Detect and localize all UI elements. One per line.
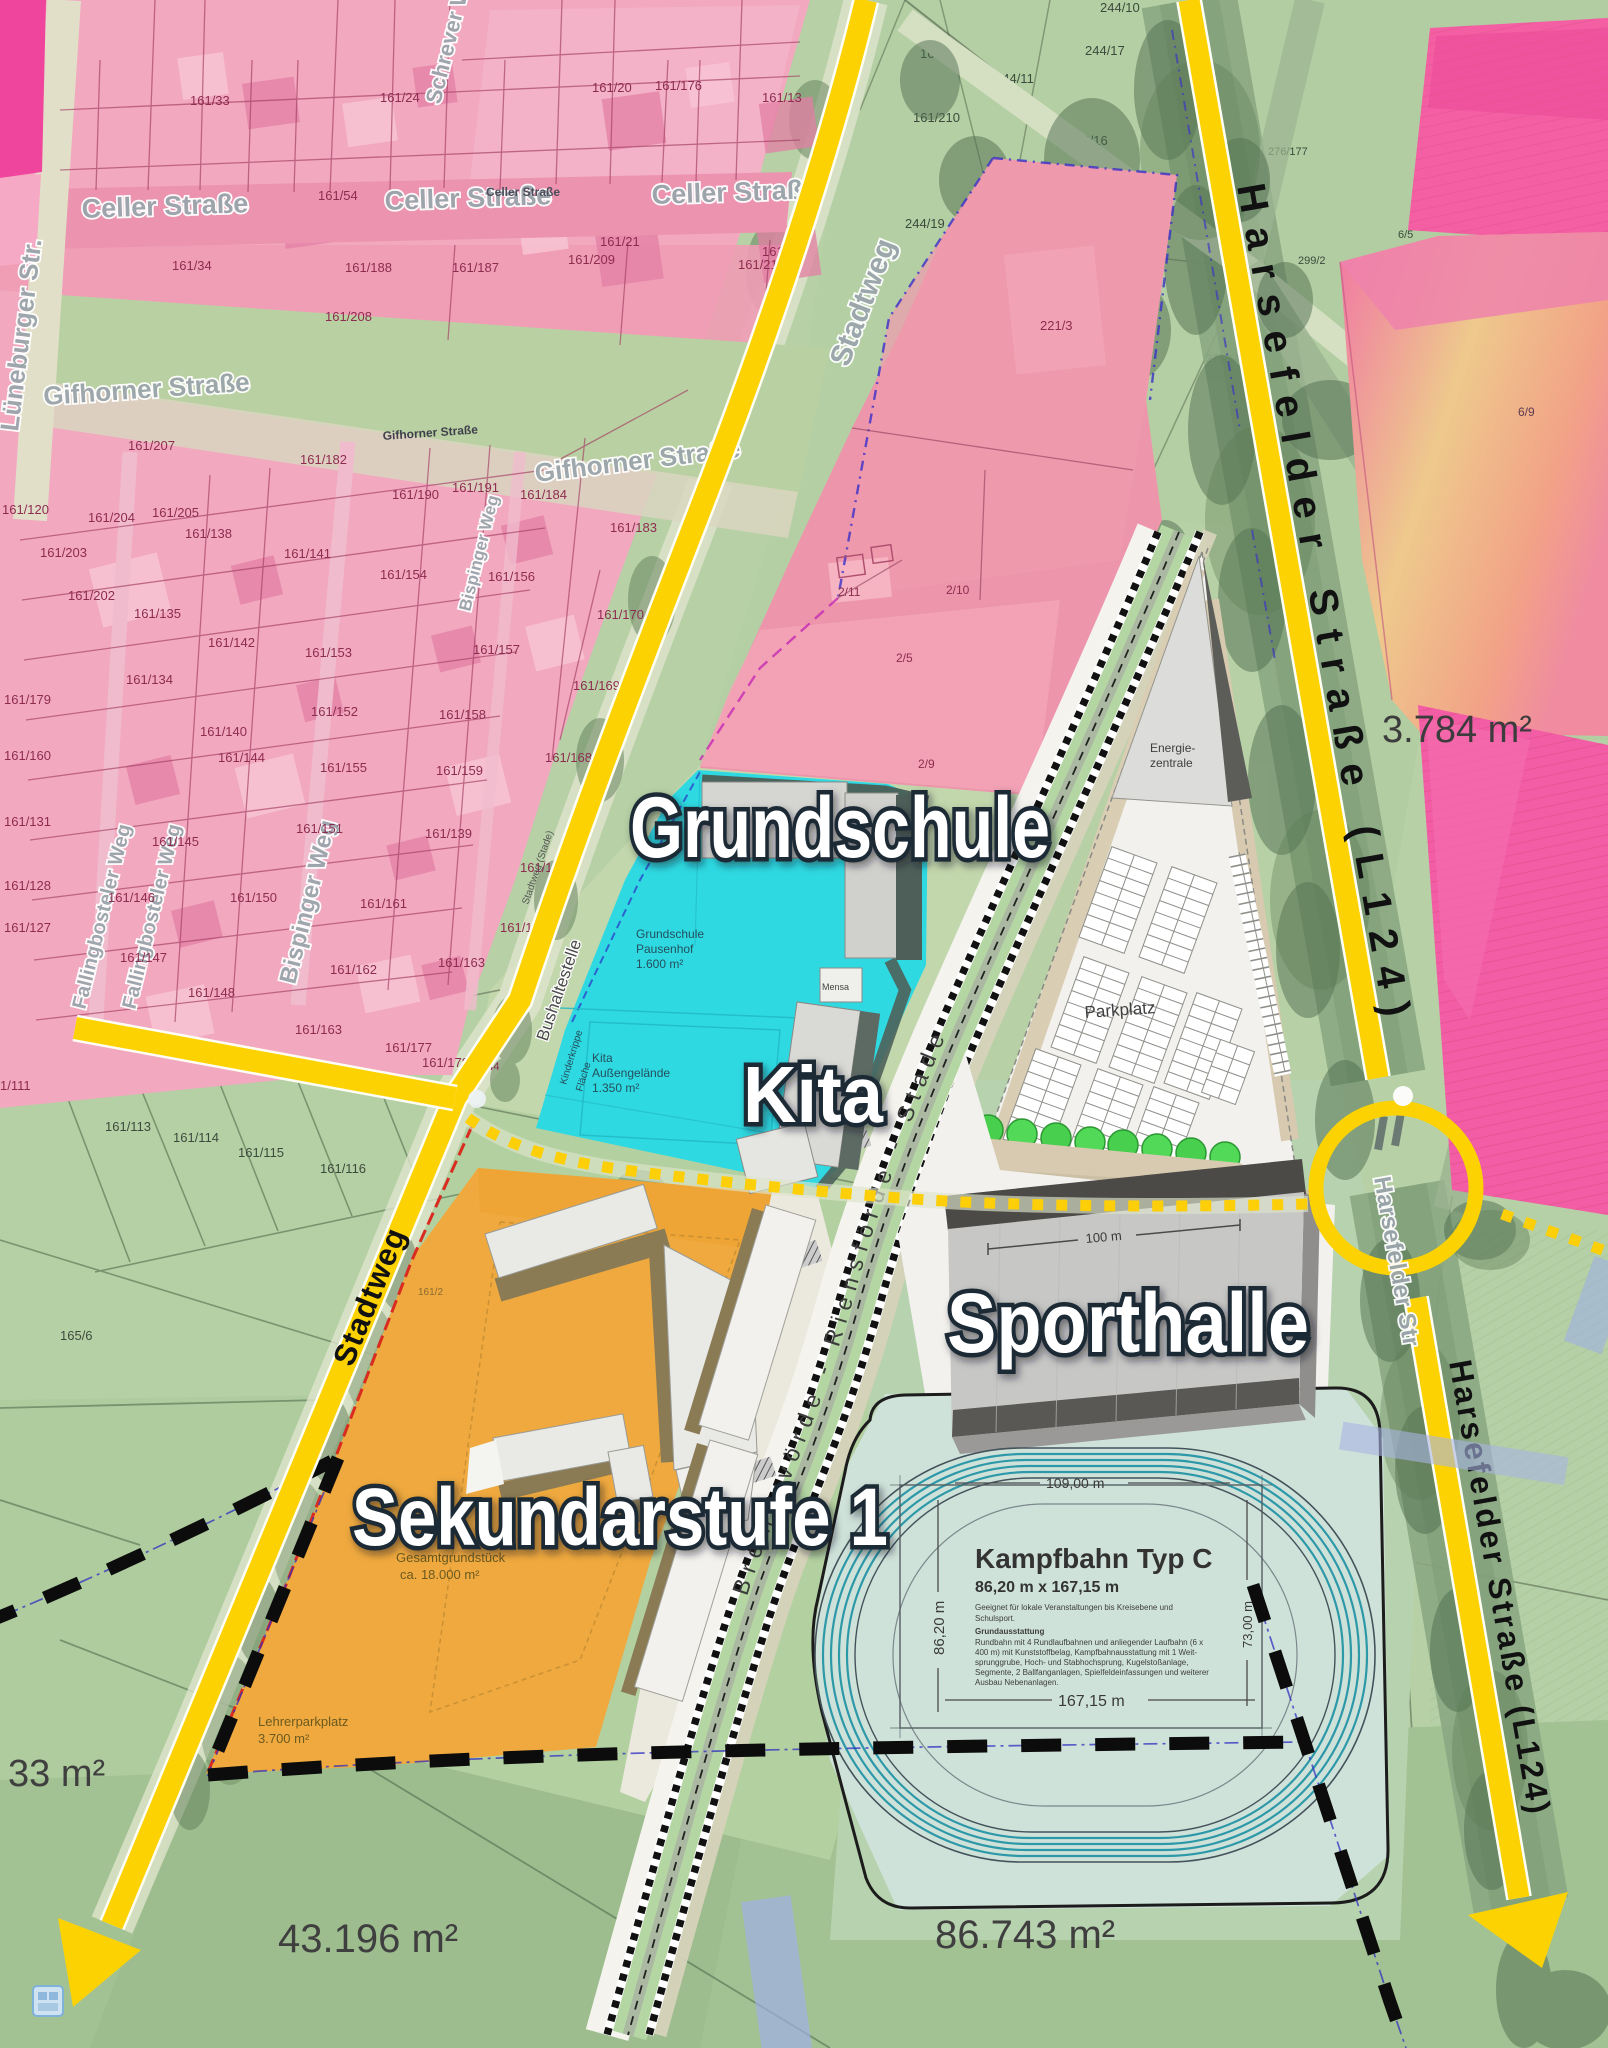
- svg-text:73,00 m: 73,00 m: [1240, 1601, 1255, 1648]
- svg-text:1.350 m²: 1.350 m²: [592, 1081, 639, 1095]
- svg-text:161/158: 161/158: [439, 707, 486, 722]
- svg-text:161/162: 161/162: [330, 962, 377, 977]
- svg-text:161/120: 161/120: [2, 502, 49, 517]
- svg-text:161/128: 161/128: [4, 878, 51, 893]
- svg-text:161/155: 161/155: [320, 760, 367, 775]
- svg-text:221/3: 221/3: [1040, 318, 1073, 333]
- svg-text:161/182: 161/182: [300, 452, 347, 467]
- svg-text:Lehrerparkplatz: Lehrerparkplatz: [258, 1714, 348, 1729]
- svg-text:161/140: 161/140: [200, 724, 247, 739]
- svg-text:161/139: 161/139: [425, 826, 472, 841]
- svg-text:161/134: 161/134: [126, 672, 173, 687]
- svg-text:161/188: 161/188: [345, 260, 392, 275]
- svg-text:Celler Straße: Celler Straße: [486, 185, 560, 199]
- svg-text:161/24: 161/24: [380, 90, 420, 105]
- svg-text:161/187: 161/187: [452, 260, 499, 275]
- svg-text:6/9: 6/9: [1518, 405, 1535, 419]
- svg-text:161/154: 161/154: [380, 567, 427, 582]
- svg-text:86.743 m²: 86.743 m²: [935, 1913, 1115, 1957]
- svg-text:Grundschule: Grundschule: [636, 927, 704, 941]
- svg-text:2/5: 2/5: [896, 651, 913, 665]
- svg-text:161/150: 161/150: [230, 890, 277, 905]
- svg-text:161/163: 161/163: [295, 1022, 342, 1037]
- svg-text:Energie-: Energie-: [1150, 741, 1195, 755]
- svg-text:161/21: 161/21: [600, 234, 640, 249]
- svg-text:161/33: 161/33: [190, 93, 230, 108]
- svg-text:161/148: 161/148: [188, 985, 235, 1000]
- svg-text:161/20: 161/20: [592, 80, 632, 95]
- svg-text:43.196 m²: 43.196 m²: [278, 1917, 458, 1961]
- svg-text:Schulsport.: Schulsport.: [975, 1614, 1015, 1623]
- svg-text:zentrale: zentrale: [1150, 756, 1193, 770]
- svg-text:244/19: 244/19: [905, 216, 945, 231]
- svg-text:161/203: 161/203: [40, 545, 87, 560]
- svg-text:161/138: 161/138: [185, 526, 232, 541]
- svg-text:400 m) mit Kunststoffbelag, Ka: 400 m) mit Kunststoffbelag, Kampfbahnaus…: [975, 1648, 1197, 1657]
- svg-text:161/207: 161/207: [128, 438, 175, 453]
- svg-text:161/131: 161/131: [4, 814, 51, 829]
- svg-text:86,20 m x 167,15 m: 86,20 m x 167,15 m: [975, 1579, 1119, 1596]
- svg-text:161/202: 161/202: [68, 588, 115, 603]
- svg-text:161/116: 161/116: [320, 1161, 366, 1176]
- svg-text:33 m²: 33 m²: [8, 1753, 105, 1795]
- svg-text:161/159: 161/159: [436, 763, 483, 778]
- svg-text:161/135: 161/135: [134, 606, 181, 621]
- svg-text:161/141: 161/141: [284, 546, 331, 561]
- svg-text:Sekundarstufe 1: Sekundarstufe 1: [352, 1472, 888, 1563]
- svg-text:161/144: 161/144: [218, 750, 265, 765]
- svg-text:161/208: 161/208: [325, 309, 372, 324]
- svg-text:161/146: 161/146: [108, 890, 155, 905]
- svg-text:Pausenhof: Pausenhof: [636, 942, 694, 956]
- svg-text:6/5: 6/5: [1398, 229, 1413, 241]
- svg-text:Grundschule: Grundschule: [630, 780, 1050, 876]
- svg-text:161/34: 161/34: [172, 258, 212, 273]
- svg-text:161/163: 161/163: [438, 955, 485, 970]
- svg-text:161/114: 161/114: [173, 1130, 219, 1145]
- svg-text:1/111: 1/111: [0, 1078, 31, 1093]
- svg-text:161/183: 161/183: [610, 520, 657, 535]
- svg-text:161/204: 161/204: [88, 510, 135, 525]
- svg-text:Celler Straße: Celler Straße: [81, 188, 249, 224]
- svg-text:1.600 m²: 1.600 m²: [636, 957, 683, 971]
- svg-text:161/168: 161/168: [545, 750, 592, 765]
- svg-text:161/191: 161/191: [452, 480, 499, 495]
- svg-text:100 m: 100 m: [1085, 1228, 1122, 1246]
- svg-text:161/179: 161/179: [4, 692, 51, 707]
- svg-text:161/151: 161/151: [296, 821, 343, 836]
- svg-text:86,20 m: 86,20 m: [931, 1601, 948, 1655]
- svg-text:299/2: 299/2: [1298, 255, 1326, 267]
- svg-text:165/6: 165/6: [60, 1328, 93, 1343]
- svg-text:161/147: 161/147: [120, 950, 167, 965]
- svg-text:Segmente, 2 Ballfanganlagen, S: Segmente, 2 Ballfanganlagen, Spielfeldei…: [975, 1668, 1209, 1677]
- svg-text:161/2: 161/2: [418, 1287, 443, 1298]
- svg-text:161/13: 161/13: [762, 90, 802, 105]
- svg-text:Kita: Kita: [743, 1050, 883, 1139]
- svg-text:Kampfbahn Typ C: Kampfbahn Typ C: [975, 1543, 1212, 1574]
- svg-text:161/170: 161/170: [597, 607, 644, 622]
- svg-text:161/161: 161/161: [360, 896, 407, 911]
- svg-text:ca. 18.000 m²: ca. 18.000 m²: [400, 1567, 480, 1582]
- svg-text:161/152: 161/152: [311, 704, 358, 719]
- svg-text:161/157: 161/157: [473, 642, 520, 657]
- svg-text:161/145: 161/145: [152, 834, 199, 849]
- svg-text:Grundausstattung: Grundausstattung: [975, 1627, 1044, 1636]
- svg-text:244/10: 244/10: [1100, 0, 1140, 15]
- svg-text:Rundbahn mit 4 Rundlaufbahnen: Rundbahn mit 4 Rundlaufbahnen und anlieg…: [975, 1638, 1203, 1647]
- svg-text:3.700 m²: 3.700 m²: [258, 1731, 310, 1746]
- svg-text:2/11: 2/11: [838, 585, 861, 599]
- svg-text:161/205: 161/205: [152, 505, 199, 520]
- svg-text:161/177: 161/177: [385, 1040, 432, 1055]
- svg-text:161/169: 161/169: [573, 678, 620, 693]
- svg-text:161/184: 161/184: [520, 487, 567, 502]
- svg-text:161/209: 161/209: [568, 252, 615, 267]
- svg-text:161/115: 161/115: [238, 1145, 284, 1160]
- svg-text:sprunggrube, Hoch- und Stabhoc: sprunggrube, Hoch- und Stabhochsprung, K…: [975, 1658, 1188, 1667]
- svg-text:Ausbau Nebenanlagen.: Ausbau Nebenanlagen.: [975, 1678, 1059, 1687]
- svg-text:161/153: 161/153: [305, 645, 352, 660]
- svg-text:Sporthalle: Sporthalle: [947, 1276, 1309, 1370]
- svg-text:167,15 m: 167,15 m: [1058, 1693, 1125, 1710]
- svg-text:3.784 m²: 3.784 m²: [1382, 709, 1532, 751]
- svg-text:161/190: 161/190: [392, 487, 439, 502]
- svg-text:161/142: 161/142: [208, 635, 255, 650]
- svg-text:Kita: Kita: [592, 1051, 613, 1065]
- svg-text:161/127: 161/127: [4, 920, 51, 935]
- svg-text:109,00 m: 109,00 m: [1046, 1475, 1104, 1491]
- svg-text:2/10: 2/10: [946, 583, 970, 597]
- svg-text:161/54: 161/54: [318, 188, 358, 203]
- svg-text:161/113: 161/113: [105, 1119, 151, 1134]
- svg-text:2/9: 2/9: [918, 757, 935, 771]
- svg-text:Geeignet für lokale Veranstalt: Geeignet für lokale Veranstaltungen bis …: [975, 1603, 1173, 1612]
- svg-text:244/17: 244/17: [1085, 43, 1125, 58]
- svg-text:161/176: 161/176: [655, 78, 702, 93]
- svg-text:161/156: 161/156: [488, 569, 535, 584]
- svg-text:Celler Straße: Celler Straße: [651, 174, 819, 210]
- svg-text:161/160: 161/160: [4, 748, 51, 763]
- svg-text:Außengelände: Außengelände: [592, 1066, 670, 1080]
- svg-text:Mensa: Mensa: [822, 982, 849, 992]
